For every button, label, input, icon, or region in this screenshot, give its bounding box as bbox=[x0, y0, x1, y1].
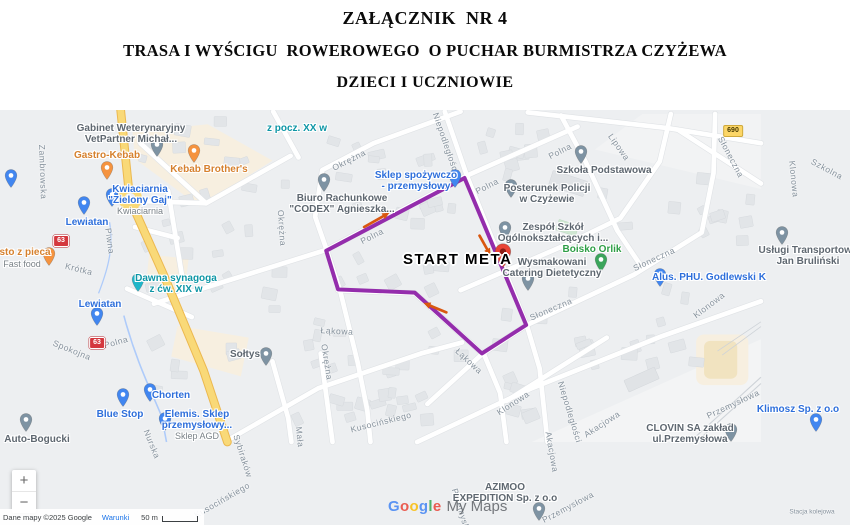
z-pocz-xx-w-label[interactable]: z pocz. XX w bbox=[267, 124, 327, 135]
gastro-kebab-pin[interactable] bbox=[100, 161, 114, 185]
gastro-kebab-label[interactable]: Gastro-Kebab bbox=[74, 151, 140, 162]
street-label: Stacja kolejowa bbox=[789, 509, 834, 516]
street-label: Mała bbox=[294, 426, 306, 448]
street-label: Słoneczna bbox=[716, 135, 746, 180]
uslugi-transportowe-label[interactable]: Usługi TransportoweJan Bruliński bbox=[759, 246, 850, 267]
street-label: Kusocińskiego bbox=[349, 410, 412, 435]
dawna-synagoga-label[interactable]: Dawna synagogaz ćw. XIX w bbox=[135, 274, 217, 295]
street-label: Łąkowa bbox=[454, 346, 485, 376]
street-label: Okrężna bbox=[319, 343, 335, 380]
scale-label: 50 m bbox=[141, 513, 158, 522]
boisko-orlik-label[interactable]: Boisko Orlik bbox=[563, 245, 622, 256]
map-canvas[interactable]: ZambrowskaPiwnaKrótkaSpokojnaPolnaPolnaP… bbox=[0, 110, 850, 525]
street-label: Polna bbox=[359, 226, 386, 246]
street-label: Polna bbox=[474, 176, 501, 196]
lewiatan-north-label[interactable]: Lewiatan bbox=[66, 218, 109, 229]
vetpartner-label[interactable]: Gabinet WeterynaryjnyVetPartner Michał..… bbox=[77, 124, 186, 145]
street-label: Szkolna bbox=[809, 156, 844, 181]
google-my-maps-logo: GoogleMy Maps bbox=[388, 498, 507, 515]
road-badge-63: 63 bbox=[53, 235, 69, 247]
kwiaciarnia-zielony-gaj-label[interactable]: Kwiaciarnia"Zielony Gaj"Kwiaciarnia bbox=[108, 185, 171, 217]
street-label: Akacjowa bbox=[543, 431, 560, 473]
azimoo-expedition-pin[interactable] bbox=[532, 502, 546, 525]
street-label: Klonowa bbox=[787, 160, 801, 198]
street-label: Niepodległości bbox=[556, 380, 584, 444]
page: ZAŁĄCZNIK NR 4 TRASA I WYŚCIGU ROWEROWEG… bbox=[0, 0, 850, 530]
kebab-brothers-label[interactable]: Kebab Brother's bbox=[170, 165, 247, 176]
soltys-label[interactable]: Sołtys bbox=[230, 350, 260, 361]
biuro-codex-label[interactable]: Biuro Rachunkowe"CODEX" Agnieszka... bbox=[289, 194, 394, 215]
street-label: Polna bbox=[547, 141, 574, 161]
zespol-szkol-label[interactable]: Zespół SzkółOgólnokształcących i... bbox=[498, 223, 609, 244]
lewiatan-south-label[interactable]: Lewiatan bbox=[79, 300, 122, 311]
start-meta-label: START META bbox=[403, 251, 512, 268]
klimosz-label[interactable]: Klimosz Sp. z o.o bbox=[757, 405, 839, 416]
document-title-block: ZAŁĄCZNIK NR 4 TRASA I WYŚCIGU ROWEROWEG… bbox=[0, 0, 850, 110]
title-line-3: DZIECI I UCZNIOWIE bbox=[0, 74, 850, 92]
wysmakowani-catering-label[interactable]: WysmakowaniCatering Dietetyczny bbox=[503, 258, 602, 279]
street-label: Piwna bbox=[103, 227, 117, 254]
terms-link[interactable]: Warunki bbox=[102, 513, 129, 522]
blue-stop-label[interactable]: Blue Stop bbox=[97, 410, 144, 421]
edge-pin-pin[interactable] bbox=[4, 169, 18, 193]
street-label: Lipowa bbox=[606, 132, 632, 163]
road-badge-63: 63 bbox=[89, 337, 105, 349]
lewiatan-south-pin[interactable] bbox=[90, 307, 104, 331]
street-label: Niepodległości bbox=[431, 111, 461, 174]
road-badge-690: 690 bbox=[723, 125, 743, 137]
street-label: Łąkowa bbox=[320, 325, 353, 337]
street-label: Polna bbox=[103, 334, 130, 350]
alus-phu-label[interactable]: Alus. PHU. Godlewski K bbox=[652, 273, 766, 284]
street-label: Krótka bbox=[64, 261, 94, 278]
title-line-1: ZAŁĄCZNIK NR 4 bbox=[0, 8, 850, 29]
zoom-in-button[interactable]: + bbox=[12, 470, 36, 492]
clovin-label[interactable]: CLOVIN SA zakładul.Przemysłowa bbox=[646, 424, 733, 445]
street-label: Przemysłowa bbox=[705, 387, 761, 420]
google-logo: Google bbox=[388, 498, 442, 515]
elemis-label[interactable]: Elemis. Sklepprzemysłowy...Sklep AGD bbox=[162, 410, 232, 442]
street-label: Sybiraków bbox=[231, 433, 254, 479]
klimosz-pin[interactable] bbox=[809, 413, 823, 437]
attribution: Dane mapy ©2025 Google Warunki 50 m bbox=[0, 509, 204, 525]
street-label: Okrężna bbox=[276, 210, 289, 247]
street-label: Spokojna bbox=[51, 338, 92, 362]
scale-bar: 50 m bbox=[141, 513, 198, 522]
chorten-label[interactable]: Chorten bbox=[152, 391, 190, 402]
title-line-2: TRASA I WYŚCIGU ROWEROWEGO O PUCHAR BURM… bbox=[0, 41, 850, 61]
prosto-z-pieca-label[interactable]: osto z piecaFast food bbox=[0, 248, 51, 269]
zoom-controls: + − bbox=[12, 470, 36, 513]
soltys-pin[interactable] bbox=[259, 347, 273, 371]
sklep-spozywczo-label[interactable]: Sklep spożywczo- przemysłowy bbox=[375, 171, 457, 192]
street-label: Zambrowska bbox=[37, 145, 49, 200]
street-label: Słoneczna bbox=[528, 296, 573, 323]
map-labels-layer: ZambrowskaPiwnaKrótkaSpokojnaPolnaPolnaP… bbox=[0, 110, 850, 525]
my-maps-label: My Maps bbox=[447, 498, 508, 515]
scale-line bbox=[162, 516, 198, 522]
street-label: Okrężna bbox=[331, 147, 368, 172]
auto-bogucki-label[interactable]: Auto-Bogucki bbox=[4, 435, 70, 446]
szkola-podstawowa-label[interactable]: Szkoła Podstawowa bbox=[556, 166, 651, 177]
street-label: Klonowa bbox=[495, 389, 531, 417]
map-copyright: Dane mapy ©2025 Google bbox=[3, 513, 92, 522]
street-label: Akacjowa bbox=[582, 409, 622, 440]
posterunek-policji-label[interactable]: Posterunek Policjiw Czyżewie bbox=[504, 184, 591, 205]
street-label: Klonowa bbox=[691, 290, 726, 320]
